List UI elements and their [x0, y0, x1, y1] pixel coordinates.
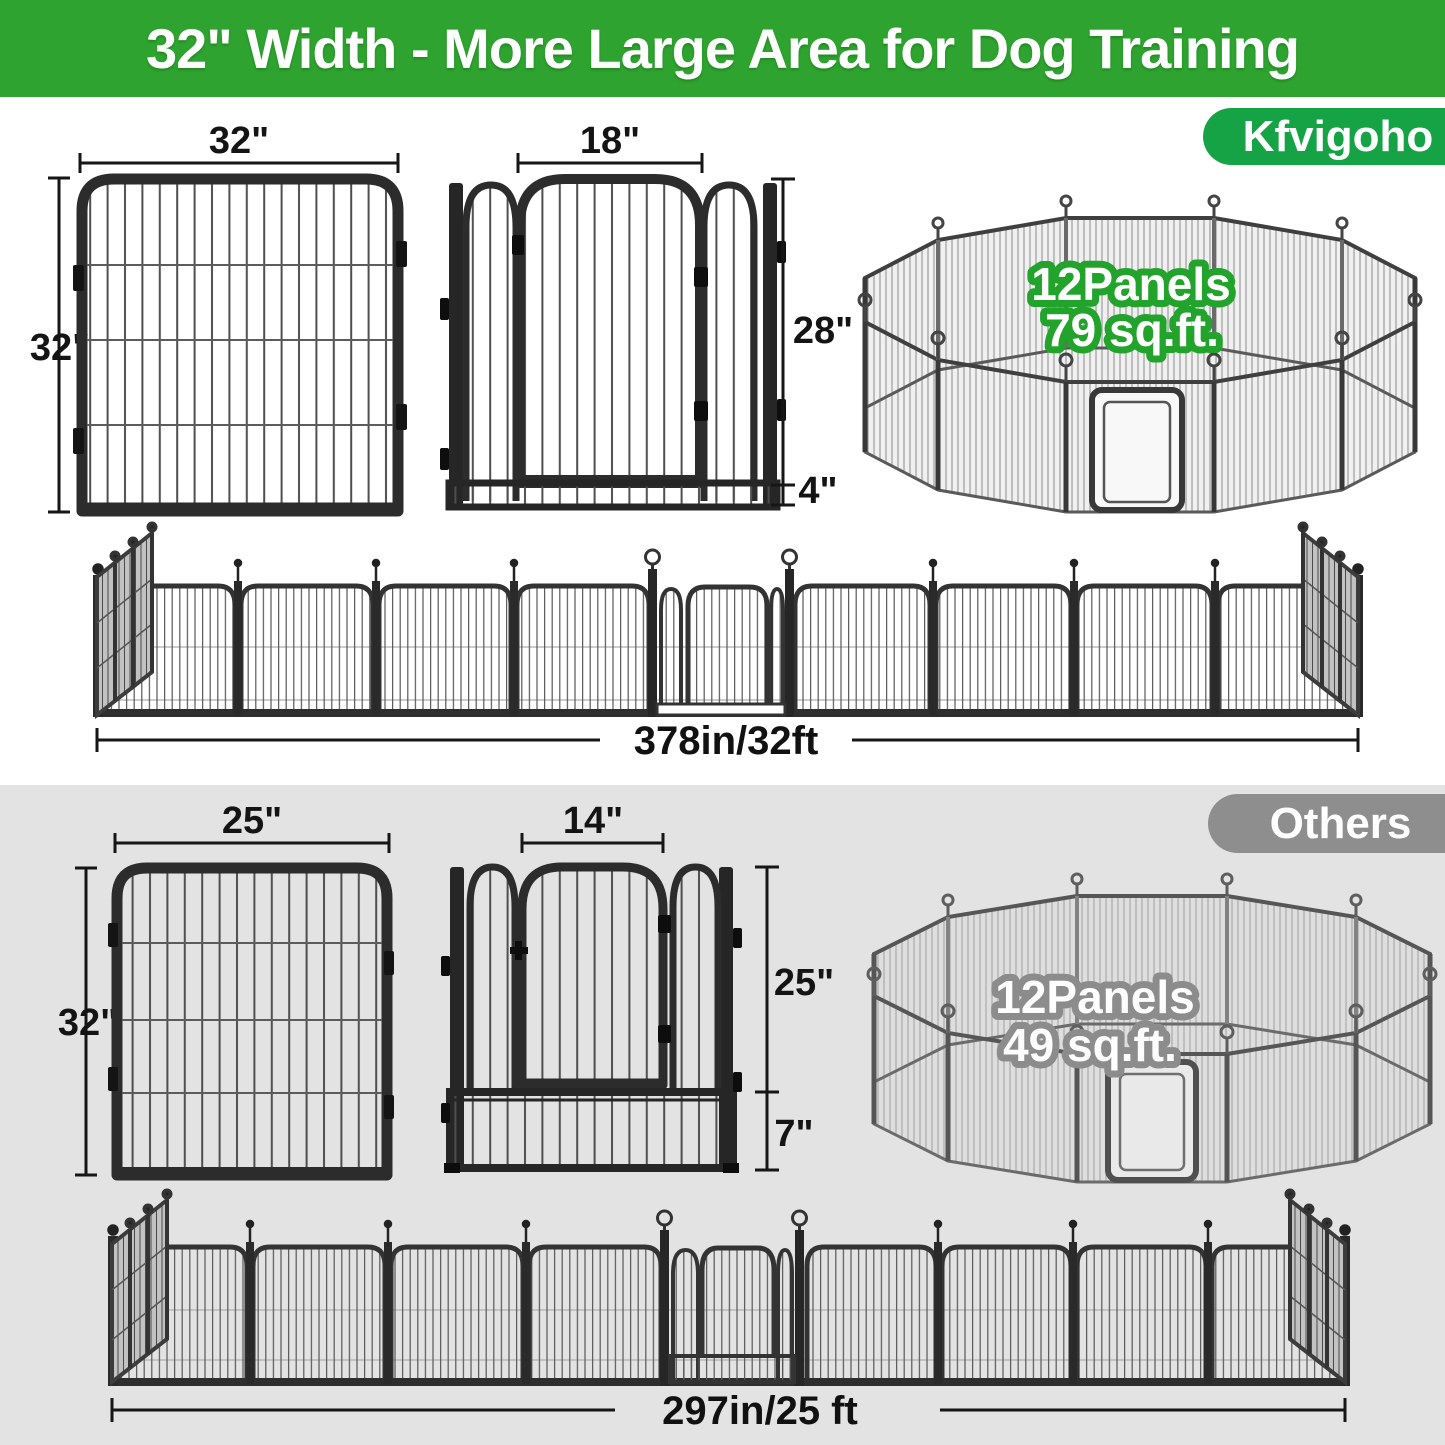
row-length-dimension: 297in/25 ft — [112, 1389, 1345, 1433]
others-badge-label: Others — [1270, 799, 1412, 849]
row-length-label: 297in/25 ft — [662, 1389, 858, 1433]
dimension-panel-height: 25" — [755, 867, 834, 1092]
door-width-label: 14" — [563, 800, 623, 842]
row-length-dimension: 378in/32ft — [97, 719, 1358, 763]
bottom-height-label: 7" — [774, 1113, 813, 1155]
panel-height-label: 32" — [58, 1002, 118, 1044]
pen-door — [1092, 390, 1182, 510]
fence-panel — [108, 868, 394, 1175]
pen-overlay-text: 12Panels 12Panels 49 sq.ft. 49 sq.ft. — [995, 971, 1194, 1071]
row-door-unit — [646, 550, 797, 717]
door-unit — [440, 179, 786, 509]
side-panel-left — [470, 867, 515, 1092]
others-pen-photo: 12Panels 12Panels 49 sq.ft. 49 sq.ft. — [840, 850, 1445, 1205]
pen-door — [1108, 1062, 1196, 1180]
row-door-unit — [658, 1211, 807, 1386]
dimension-width: 25" — [115, 800, 389, 853]
brand-panel-diagram: 32" 32" — [30, 115, 450, 535]
dimension-bottom-height: 4" — [771, 470, 838, 512]
others-badge: Others — [1208, 794, 1445, 853]
dimension-bottom-height: 7" — [755, 1092, 814, 1170]
outer-post-left — [449, 183, 463, 509]
row-door-sill — [670, 1356, 794, 1382]
pen-area-label: 79 sq.ft. — [1045, 304, 1219, 356]
side-panel-left — [466, 185, 516, 501]
door-height-label: 25" — [774, 962, 834, 1004]
panel-width-label: 25" — [222, 800, 282, 842]
door-unit — [441, 867, 742, 1173]
brand-badge: Kfvigoho — [1203, 108, 1445, 165]
infographic-canvas: 32" Width - More Large Area for Dog Trai… — [0, 0, 1445, 1445]
others-door-diagram: 14" 25" — [430, 795, 875, 1225]
dimension-door-width: 14" — [522, 800, 663, 853]
dimension-height: 32" — [58, 868, 118, 1175]
outer-post-right — [763, 183, 777, 509]
door-leaf — [520, 179, 700, 483]
door-leaf — [522, 867, 663, 1085]
brand-pen-photo: 12Panels 12Panels 79 sq.ft. 79 sq.ft. — [830, 180, 1445, 540]
others-row-diagram: 297in/25 ft — [50, 1180, 1445, 1445]
bottom-panel — [450, 1092, 733, 1168]
pen-panels-label: 12Panels — [995, 971, 1194, 1023]
bottom-rail — [449, 483, 777, 507]
dimension-door-width: 18" — [518, 120, 702, 173]
side-panel-right — [673, 867, 718, 1092]
row-door-leaf — [702, 1248, 774, 1356]
brand-row-diagram: 378in/32ft — [40, 518, 1440, 768]
banner-title: 32" Width - More Large Area for Dog Trai… — [146, 16, 1299, 81]
row-door-leaf — [688, 587, 767, 709]
pen-panels-label: 12Panels — [1031, 258, 1230, 310]
dimension-width: 32" — [80, 120, 398, 173]
others-panel-diagram: 25" 32" — [55, 795, 475, 1215]
brand-door-diagram: 18" 28" — [430, 115, 875, 545]
row-door-sill — [657, 704, 785, 715]
door-width-label: 18" — [580, 120, 640, 162]
fence-panel — [73, 179, 407, 511]
row-length-label: 378in/32ft — [634, 719, 819, 763]
pen-overlay-text: 12Panels 12Panels 79 sq.ft. 79 sq.ft. — [1031, 258, 1230, 356]
brand-badge-label: Kfvigoho — [1243, 112, 1434, 162]
pen-area-label: 49 sq.ft. — [1003, 1019, 1177, 1071]
panel-width-label: 32" — [209, 120, 269, 162]
top-banner: 32" Width - More Large Area for Dog Trai… — [0, 0, 1445, 97]
side-panel-right — [704, 185, 754, 501]
